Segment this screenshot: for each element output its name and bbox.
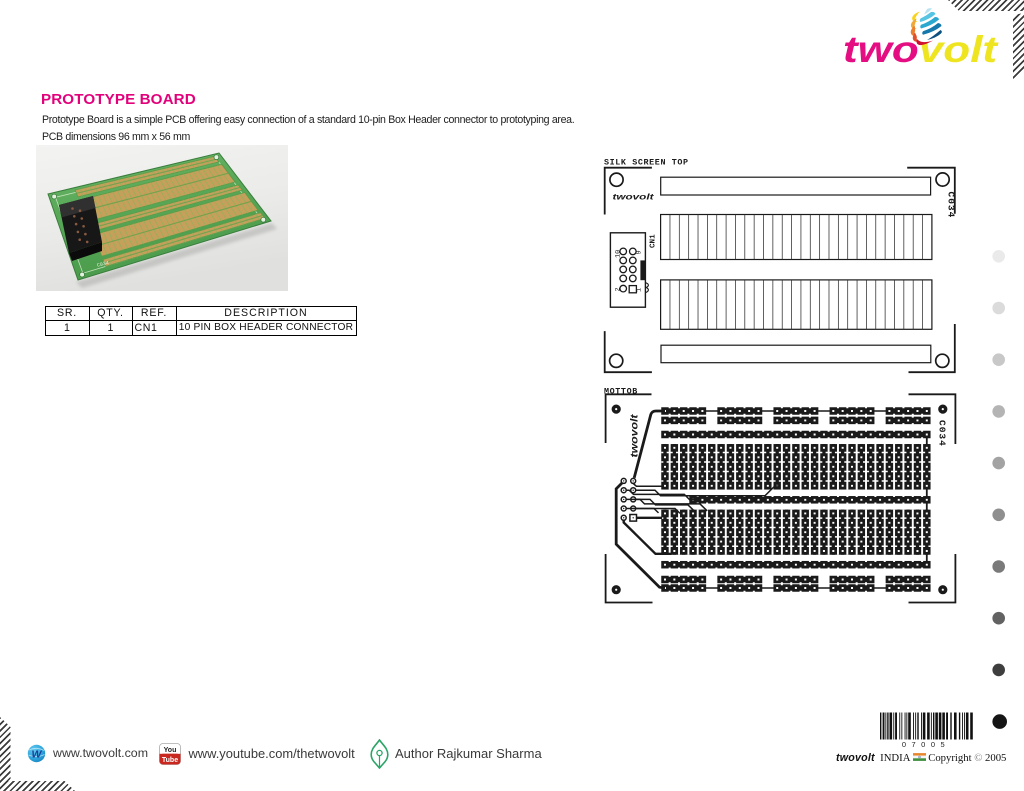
svg-text:C034: C034 — [946, 192, 957, 219]
svg-text:You: You — [163, 746, 176, 753]
svg-text:CN1: CN1 — [650, 234, 658, 248]
svg-text:twovolt: twovolt — [613, 193, 654, 202]
svg-text:SILK SCREEN TOP: SILK SCREEN TOP — [604, 158, 689, 168]
svg-text:07005: 07005 — [902, 740, 950, 749]
svg-text:10: 10 — [614, 250, 622, 258]
svg-text:2: 2 — [614, 287, 622, 291]
svg-text:C034: C034 — [937, 420, 948, 447]
svg-text:1: 1 — [636, 288, 644, 292]
svg-text:Tube: Tube — [161, 757, 177, 764]
svg-text:9: 9 — [636, 250, 644, 254]
svg-text:W: W — [32, 748, 43, 760]
svg-text:twovolt: twovolt — [630, 414, 641, 458]
